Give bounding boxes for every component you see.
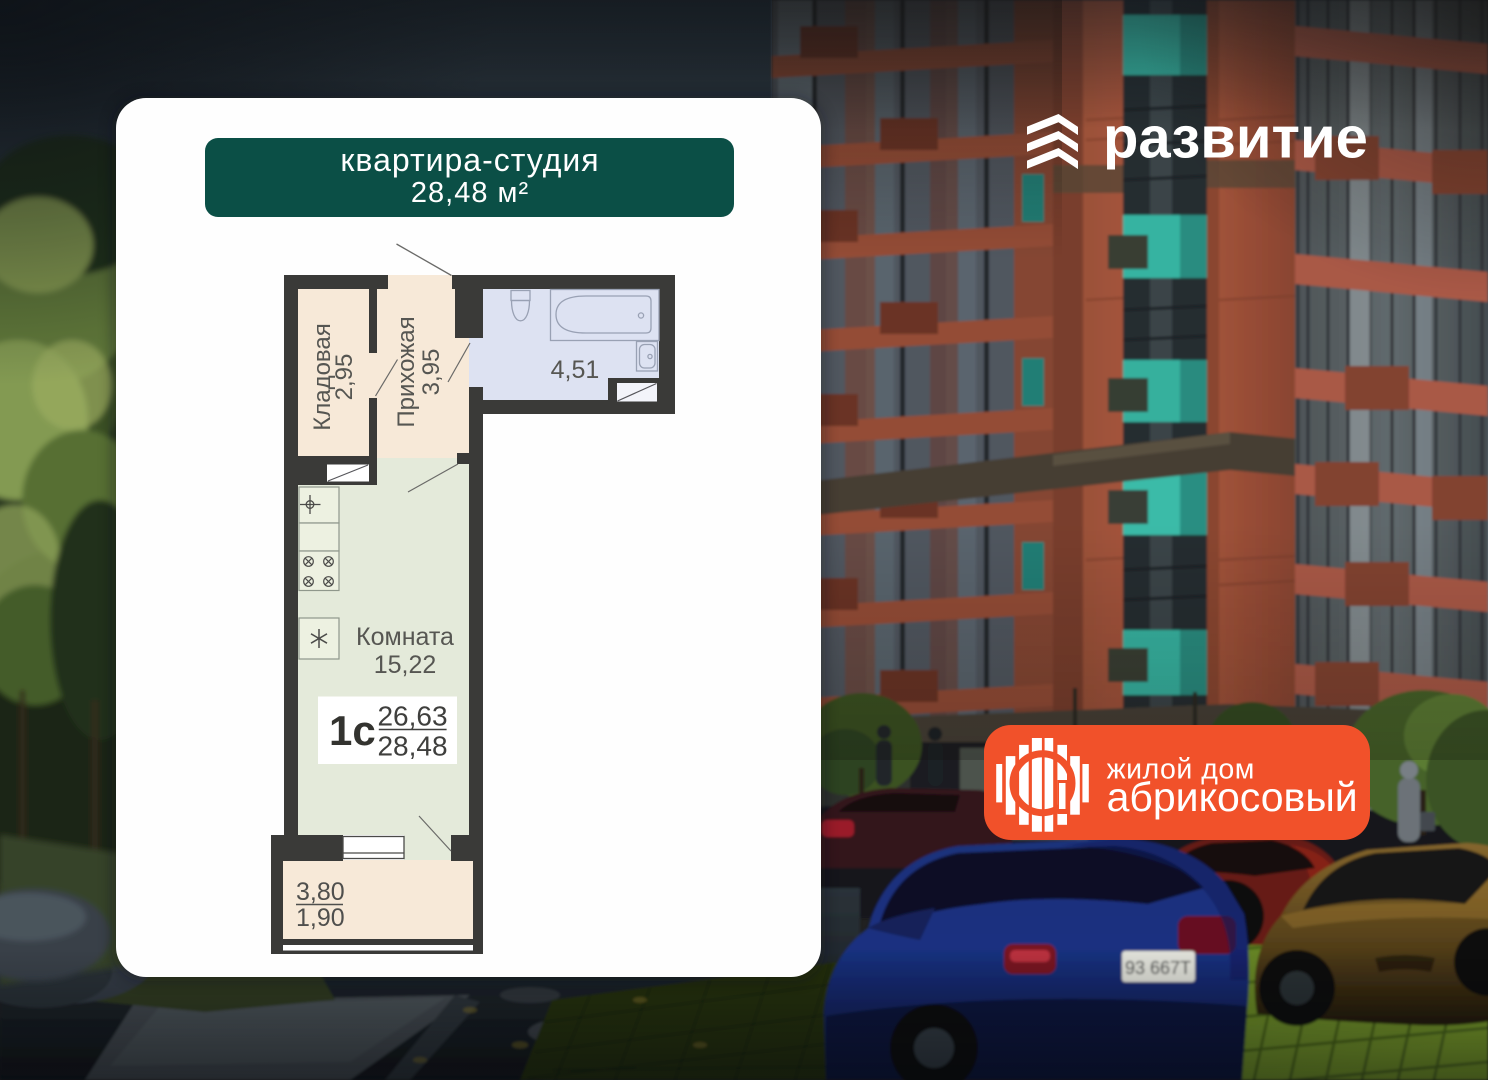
svg-text:квартира-студия: квартира-студия: [340, 142, 599, 178]
svg-text:15,22: 15,22: [374, 651, 437, 679]
svg-text:4,51: 4,51: [551, 356, 600, 384]
svg-text:1,90: 1,90: [296, 904, 345, 932]
svg-text:развитие: развитие: [1103, 106, 1368, 171]
svg-text:1с: 1с: [329, 707, 376, 754]
svg-text:2,95: 2,95: [331, 354, 358, 401]
svg-text:26,63: 26,63: [377, 701, 447, 732]
svg-text:абрикосовый: абрикосовый: [1107, 774, 1358, 820]
svg-text:28,48 м²: 28,48 м²: [411, 177, 529, 209]
svg-text:28,48: 28,48: [377, 731, 447, 762]
svg-text:Прихожая: Прихожая: [393, 316, 420, 427]
svg-text:Комната: Комната: [356, 623, 454, 651]
svg-text:3,95: 3,95: [418, 349, 445, 396]
svg-text:3,80: 3,80: [296, 878, 345, 906]
